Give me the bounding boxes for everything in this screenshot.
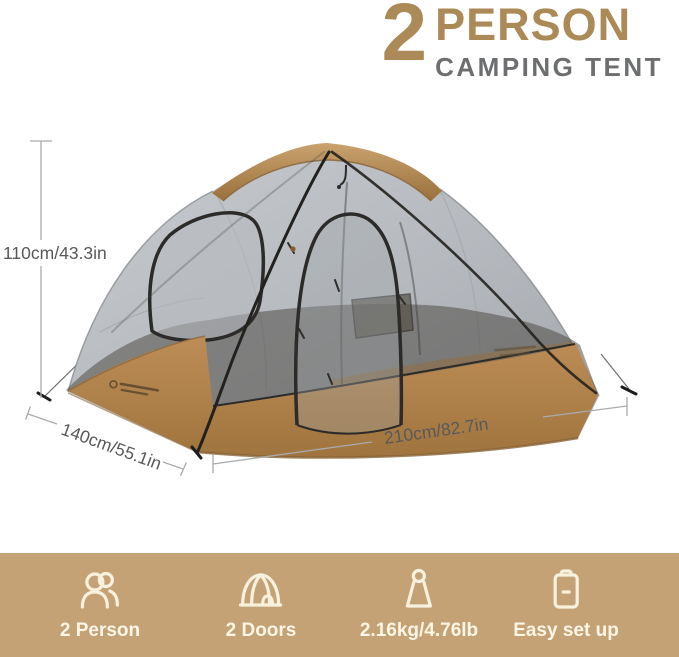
feature-label: 2.16kg/4.76lb (360, 620, 478, 642)
feature-label: 2 Doors (226, 620, 297, 642)
feature-label: 2 Person (60, 620, 140, 642)
clipboard-icon (541, 567, 591, 613)
feature-setup: Easy set up (513, 567, 619, 642)
feature-label: Easy set up (513, 620, 619, 642)
tent-photo: 110cm/43.3in 140cm/55.1in 210cm/82.7in (0, 0, 679, 553)
two-person-icon (75, 567, 125, 613)
weight-icon (394, 567, 444, 613)
feature-weight: 2.16kg/4.76lb (360, 567, 478, 642)
feature-capacity: 2 Person (60, 567, 140, 642)
door-toggle (290, 246, 295, 251)
height-dimension-label: 110cm/43.3in (3, 243, 107, 263)
dome-tent-icon (236, 567, 286, 613)
feature-doors: 2 Doors (226, 567, 297, 642)
product-hero: 2 PERSON CAMPING TENT (0, 0, 679, 657)
